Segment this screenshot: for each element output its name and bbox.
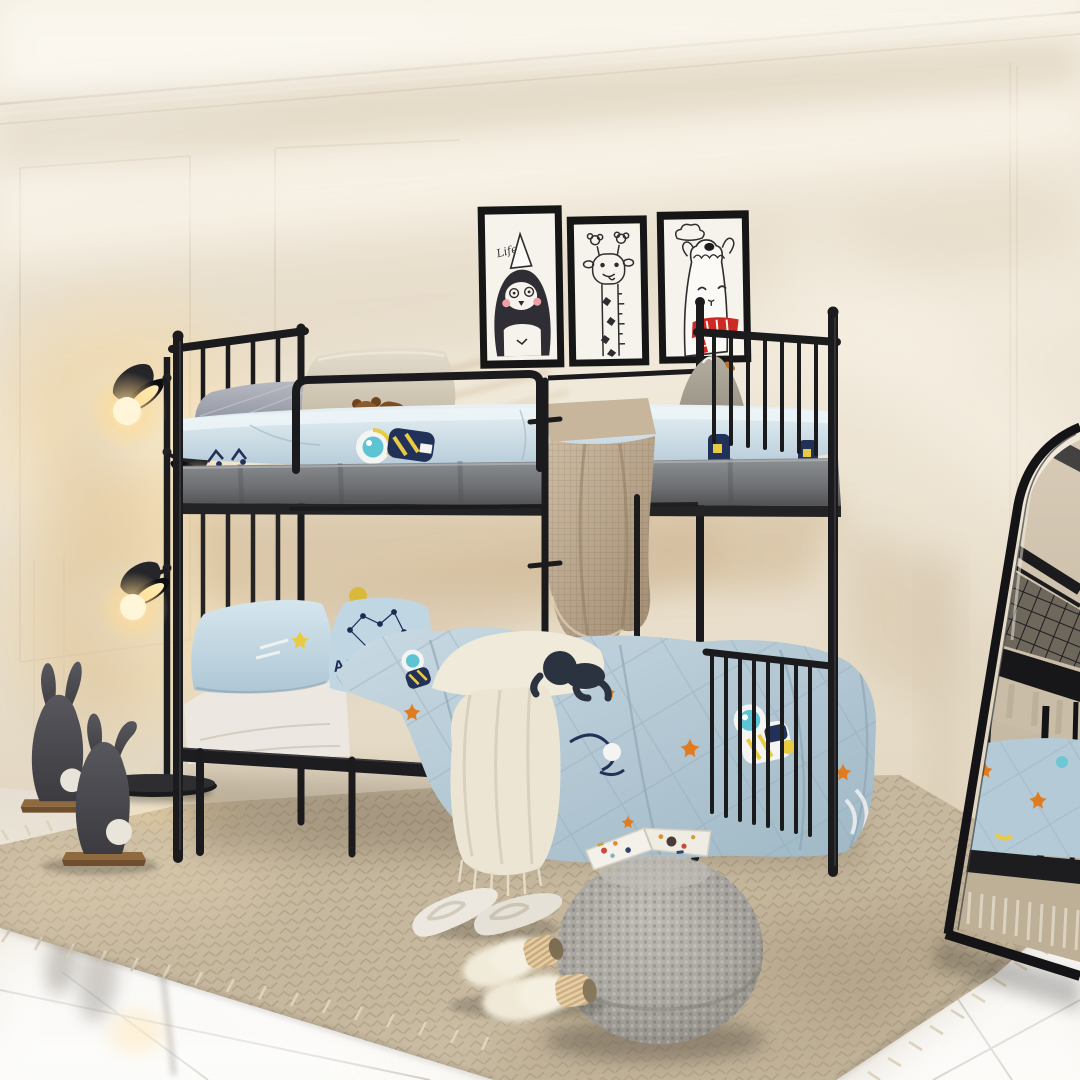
picture-frame-penguin: Life xyxy=(478,205,565,368)
picture-frame-giraffe xyxy=(567,215,650,366)
bedroom-photo: Life xyxy=(0,0,1080,1080)
gallery-wall: Life xyxy=(478,205,752,368)
ladder-rung-upper xyxy=(530,419,560,422)
ladder-rung-lower xyxy=(530,563,560,566)
rabbit-pompom-tail xyxy=(106,819,132,845)
scene-canvas: Life xyxy=(0,0,1080,1080)
pillow-shooting-star xyxy=(191,600,333,693)
top-footboard-slats xyxy=(714,336,816,454)
